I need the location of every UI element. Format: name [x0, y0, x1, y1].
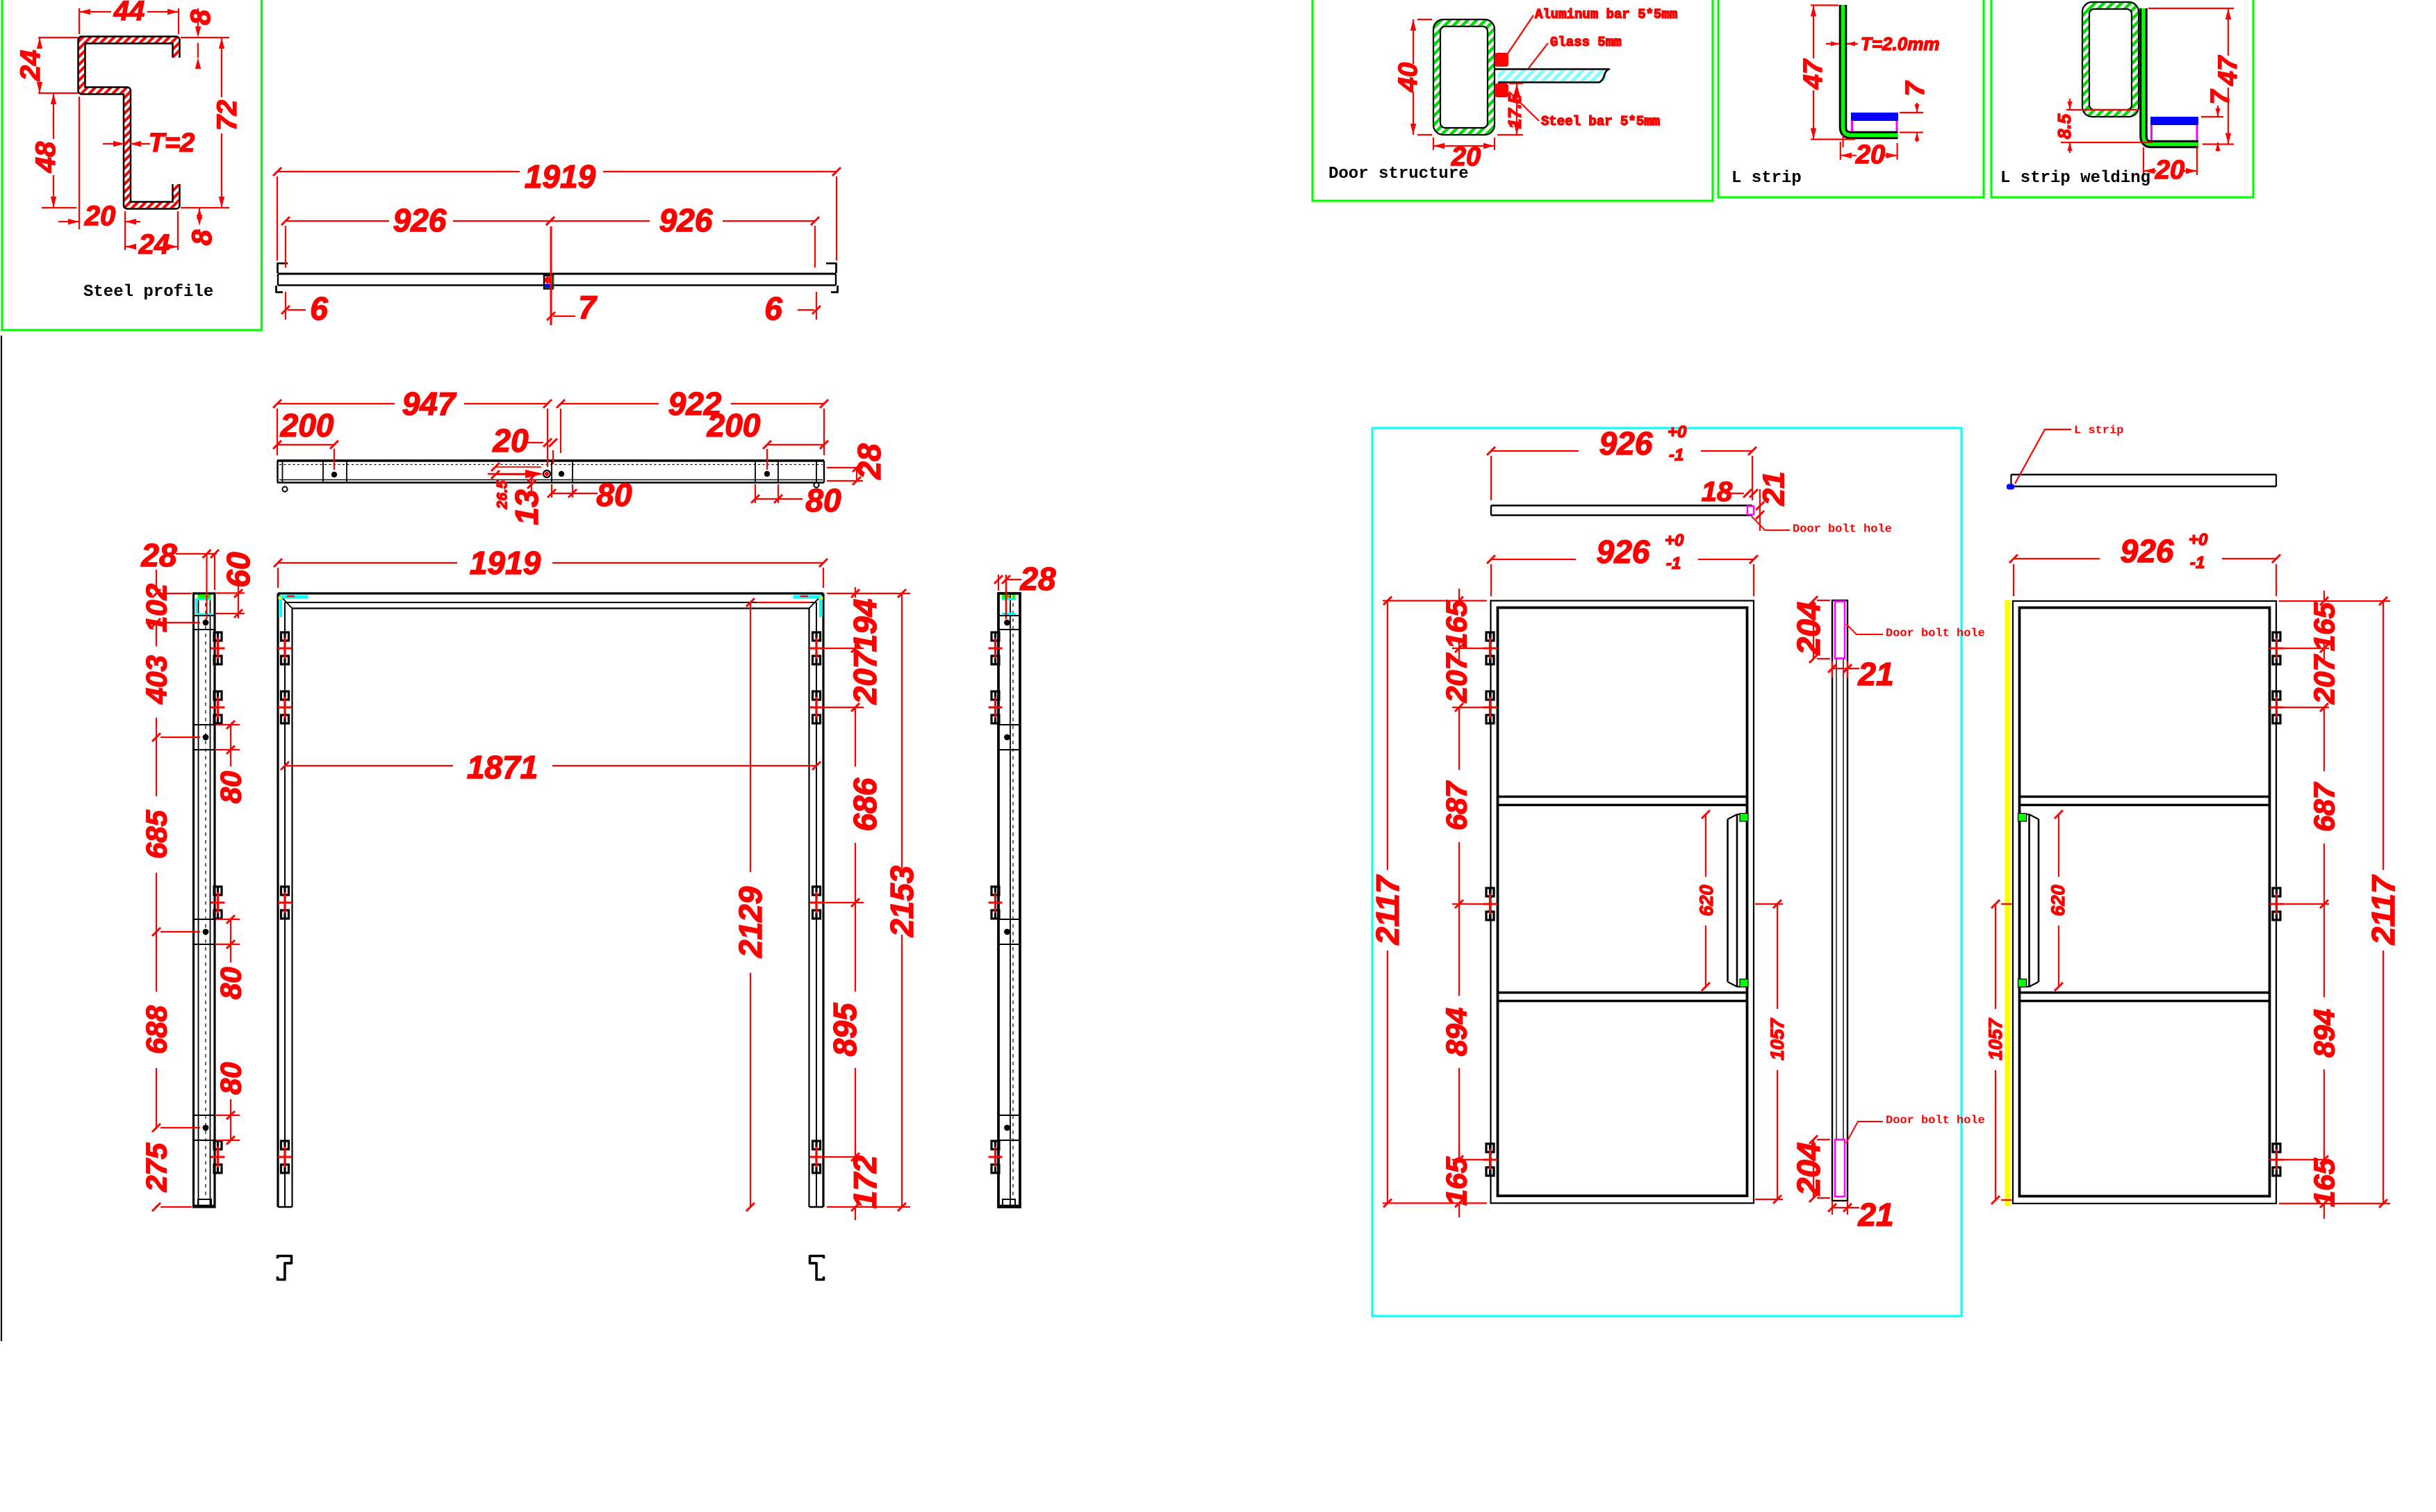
svg-text:T=2: T=2: [149, 129, 195, 158]
svg-text:2117: 2117: [1369, 874, 1406, 945]
svg-text:24: 24: [138, 229, 170, 260]
svg-text:+0: +0: [1665, 532, 1684, 550]
svg-text:Steel profile: Steel profile: [83, 283, 213, 302]
svg-text:60: 60: [220, 552, 256, 588]
svg-text:20: 20: [1855, 140, 1885, 170]
svg-text:80: 80: [215, 771, 247, 804]
svg-text:1919: 1919: [525, 158, 596, 195]
svg-text:926: 926: [393, 202, 447, 238]
svg-text:172: 172: [847, 1155, 883, 1208]
svg-text:40: 40: [1394, 63, 1423, 92]
svg-text:1919: 1919: [470, 545, 541, 581]
svg-text:T=2.0mm: T=2.0mm: [1861, 33, 1939, 54]
svg-text:947: 947: [402, 386, 457, 422]
svg-text:47: 47: [1799, 58, 1828, 90]
svg-text:21: 21: [1857, 1197, 1893, 1233]
svg-text:17.5: 17.5: [1504, 93, 1525, 129]
svg-text:204: 204: [1791, 1142, 1827, 1197]
svg-text:403: 403: [140, 655, 173, 705]
svg-text:1057: 1057: [1985, 1017, 2006, 1060]
svg-text:8: 8: [186, 9, 216, 25]
svg-text:Door bolt hole: Door bolt hole: [1886, 1115, 1985, 1128]
svg-text:926: 926: [1599, 425, 1653, 461]
svg-text:21: 21: [1857, 656, 1893, 692]
svg-text:13: 13: [509, 489, 545, 525]
svg-text:Door structure: Door structure: [1328, 165, 1469, 183]
svg-text:2117: 2117: [2365, 874, 2401, 945]
svg-text:44: 44: [113, 0, 145, 26]
svg-text:894: 894: [2308, 1009, 2341, 1058]
svg-text:80: 80: [596, 477, 632, 513]
svg-text:28: 28: [851, 443, 887, 480]
svg-text:20: 20: [492, 422, 529, 459]
svg-text:8.5: 8.5: [2054, 113, 2075, 139]
svg-text:Door bolt hole: Door bolt hole: [1793, 523, 1892, 536]
svg-text:Aluminum bar 5*5mm: Aluminum bar 5*5mm: [1535, 7, 1677, 22]
svg-text:1057: 1057: [1767, 1017, 1788, 1060]
svg-text:194: 194: [847, 599, 883, 652]
svg-text:80: 80: [215, 1062, 247, 1095]
svg-text:207: 207: [2308, 654, 2341, 705]
svg-text:687: 687: [1440, 780, 1473, 830]
svg-text:Door bolt hole: Door bolt hole: [1886, 627, 1985, 641]
svg-text:8: 8: [187, 229, 217, 245]
svg-text:28: 28: [1019, 561, 1056, 597]
svg-text:7: 7: [2206, 89, 2235, 105]
svg-text:Glass 5mm: Glass 5mm: [1550, 35, 1622, 50]
svg-text:20: 20: [2155, 156, 2184, 185]
svg-text:21: 21: [1757, 472, 1791, 507]
svg-text:L strip: L strip: [1731, 169, 1802, 188]
svg-text:+0: +0: [1668, 423, 1687, 442]
svg-text:200: 200: [280, 407, 334, 443]
svg-text:926: 926: [659, 202, 713, 238]
svg-text:207: 207: [1440, 652, 1473, 703]
svg-text:72: 72: [212, 100, 242, 131]
svg-text:895: 895: [827, 1002, 863, 1056]
svg-text:24: 24: [15, 50, 46, 82]
svg-text:47: 47: [2214, 55, 2243, 86]
svg-text:80: 80: [215, 967, 247, 1000]
svg-text:L strip: L strip: [2074, 425, 2123, 438]
svg-text:207: 207: [847, 649, 883, 705]
svg-text:6: 6: [310, 290, 328, 327]
svg-text:80: 80: [805, 482, 841, 518]
svg-text:28: 28: [140, 537, 177, 573]
svg-text:18: 18: [1702, 477, 1733, 507]
svg-text:686: 686: [847, 778, 883, 831]
svg-text:687: 687: [2308, 782, 2341, 832]
svg-text:+0: +0: [2189, 531, 2208, 550]
svg-text:685: 685: [140, 810, 173, 859]
svg-text:165: 165: [1440, 600, 1473, 649]
svg-text:926: 926: [1597, 534, 1650, 570]
svg-text:688: 688: [140, 1005, 173, 1054]
svg-text:620: 620: [1696, 885, 1717, 916]
svg-text:7: 7: [578, 289, 598, 325]
svg-text:620: 620: [2048, 885, 2068, 916]
svg-text:20: 20: [84, 201, 116, 231]
svg-text:7: 7: [1901, 81, 1930, 97]
svg-text:48: 48: [31, 141, 61, 173]
svg-text:-1: -1: [1669, 446, 1684, 465]
svg-text:-1: -1: [1666, 554, 1681, 573]
svg-text:200: 200: [707, 407, 761, 443]
svg-text:-1: -1: [2190, 554, 2205, 573]
svg-text:926: 926: [2121, 533, 2174, 569]
svg-text:204: 204: [1791, 602, 1827, 656]
svg-text:894: 894: [1440, 1008, 1473, 1056]
svg-text:6: 6: [764, 290, 782, 327]
svg-text:Steel bar 5*5mm: Steel bar 5*5mm: [1541, 114, 1660, 129]
svg-text:1871: 1871: [467, 749, 538, 785]
svg-text:2129: 2129: [732, 886, 768, 958]
svg-text:275: 275: [140, 1142, 173, 1192]
svg-text:L strip welding: L strip welding: [2000, 169, 2150, 188]
svg-text:165: 165: [2308, 1158, 2341, 1207]
svg-text:2153: 2153: [884, 865, 920, 937]
